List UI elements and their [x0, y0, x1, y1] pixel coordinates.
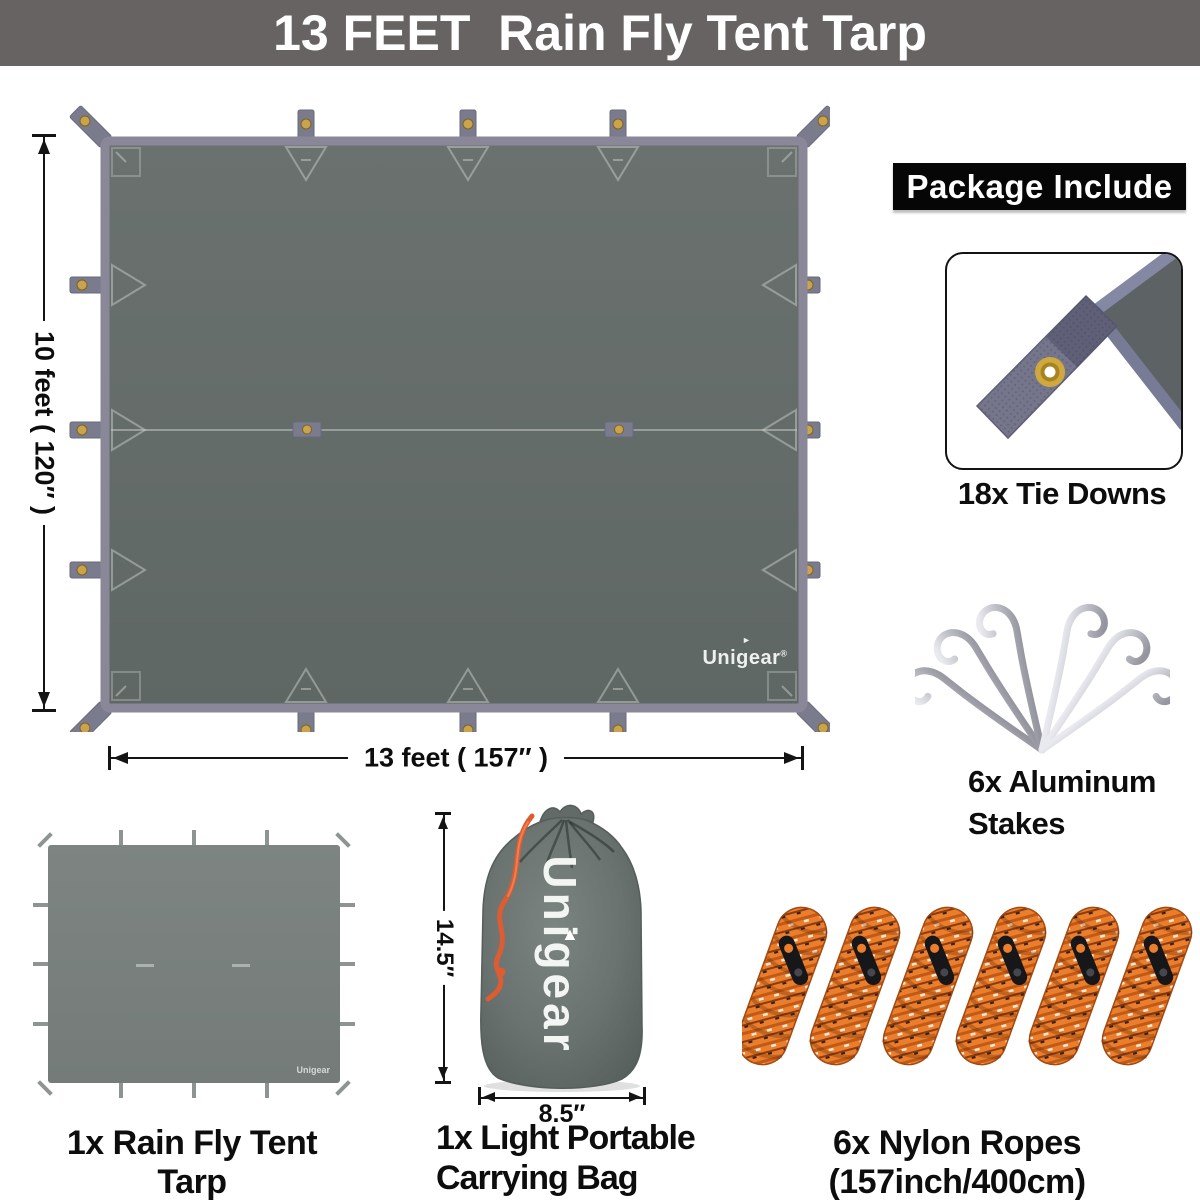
- bag-height-label: 14.5″: [424, 911, 464, 985]
- bag-brand-text: Unigear: [536, 847, 584, 1063]
- stakes-label: 6x Aluminum Stakes: [968, 764, 1156, 842]
- mini-tarp-brand: Unigear: [296, 1065, 330, 1075]
- tarp-height-dimension: 10 feet ( 120″ ): [30, 134, 60, 712]
- bag-label: 1x Light Portable Carrying Bag: [436, 1118, 695, 1198]
- brand-name: Unigear: [702, 647, 780, 669]
- arrow-up-icon: [438, 817, 448, 829]
- product-infographic: 13 FEET Rain Fly Tent Tarp: [0, 0, 1200, 1200]
- package-include-title: Package Include: [906, 168, 1172, 206]
- mini-tarp-label: 1x Rain Fly Tent Tarp: [28, 1124, 356, 1200]
- rope-bundles: [742, 900, 1199, 1071]
- tarp-width-dimension: 13 feet ( 157″ ): [108, 744, 804, 774]
- arrow-right-icon: [784, 752, 799, 764]
- tie-downs-label: 18x Tie Downs: [945, 476, 1179, 512]
- tarp-body: [105, 141, 803, 708]
- page-title: 13 FEET Rain Fly Tent Tarp: [273, 4, 927, 62]
- tarp-diagram: [60, 100, 830, 732]
- mini-tarp-photo: Unigear: [48, 845, 340, 1083]
- bag-label-line1: 1x Light Portable: [436, 1118, 695, 1158]
- tie-down-illustration: [947, 254, 1181, 468]
- package-include-header: Package Include: [893, 163, 1186, 210]
- brand-triangle-icon: ►: [742, 635, 751, 645]
- nylon-ropes-photo: [742, 886, 1200, 1094]
- stakes-label-line1: 6x Aluminum: [968, 764, 1156, 800]
- arrow-down-icon: [38, 692, 50, 707]
- arrow-left-icon: [113, 752, 128, 764]
- bag-triangle-icon: ▲: [561, 924, 579, 945]
- stakes-label-line2: Stakes: [968, 806, 1156, 842]
- bag-label-line2: Carrying Bag: [436, 1158, 695, 1198]
- bag-height-dimension: 14.5″: [430, 812, 456, 1084]
- tarp-brand-logo: ►Unigear®: [695, 647, 795, 670]
- arrow-up-icon: [38, 139, 50, 154]
- title-banner: 13 FEET Rain Fly Tent Tarp: [0, 0, 1200, 66]
- registered-mark: ®: [780, 648, 787, 658]
- tie-down-photo: [945, 252, 1183, 470]
- ropes-label: 6x Nylon Ropes (157inch/400cm): [714, 1124, 1200, 1200]
- aluminum-stakes-photo: [915, 550, 1170, 762]
- tarp-height-label: 10 feet ( 120″ ): [21, 321, 68, 525]
- arrow-down-icon: [438, 1067, 448, 1079]
- tarp-width-label: 13 feet ( 157″ ): [348, 741, 564, 776]
